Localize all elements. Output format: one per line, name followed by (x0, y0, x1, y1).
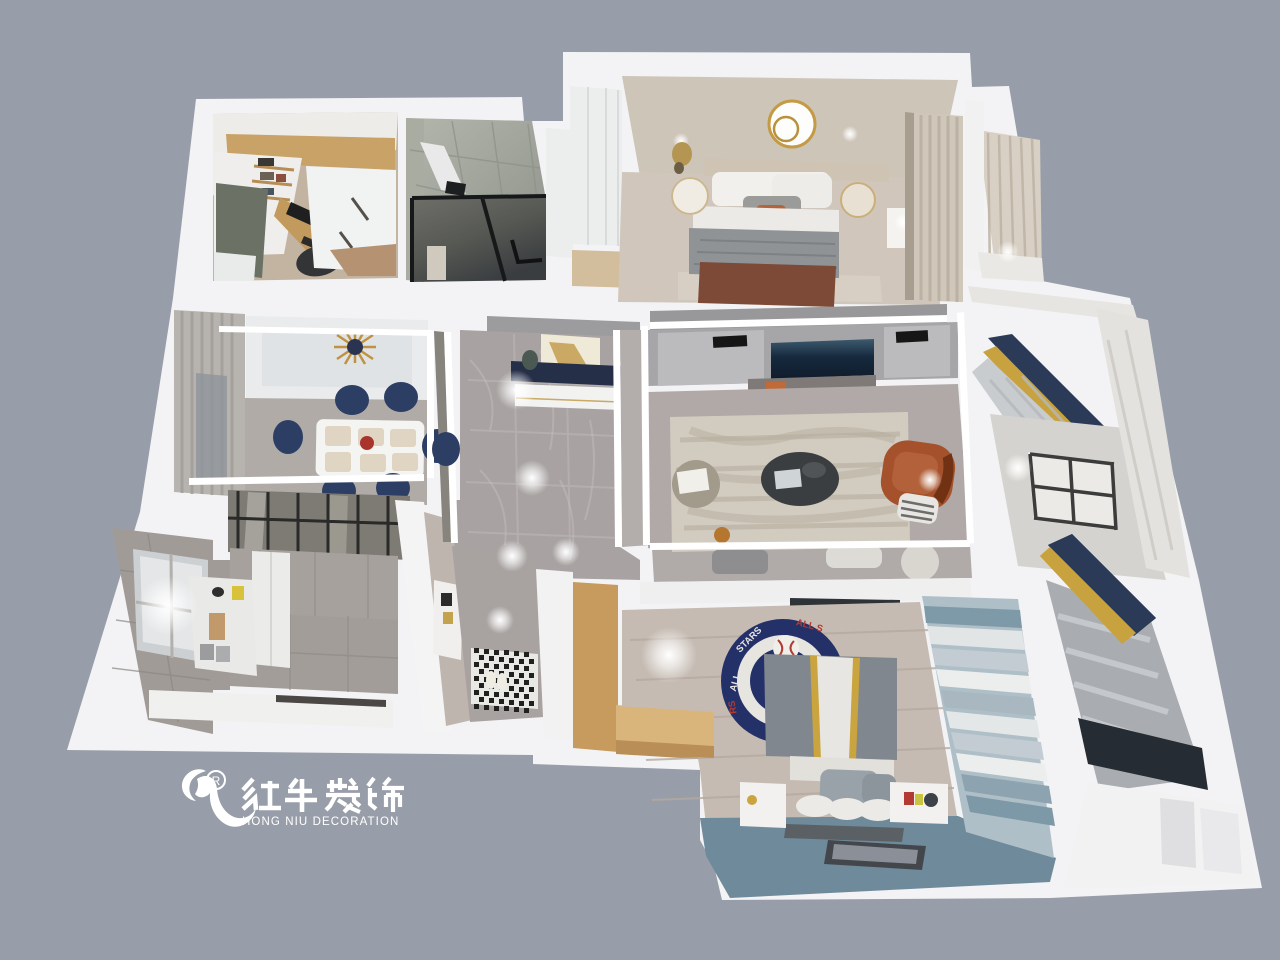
svg-text:HONG NIU DECORATION: HONG NIU DECORATION (242, 816, 399, 828)
svg-text:RS: RS (726, 700, 739, 715)
svg-text:R: R (212, 774, 221, 788)
